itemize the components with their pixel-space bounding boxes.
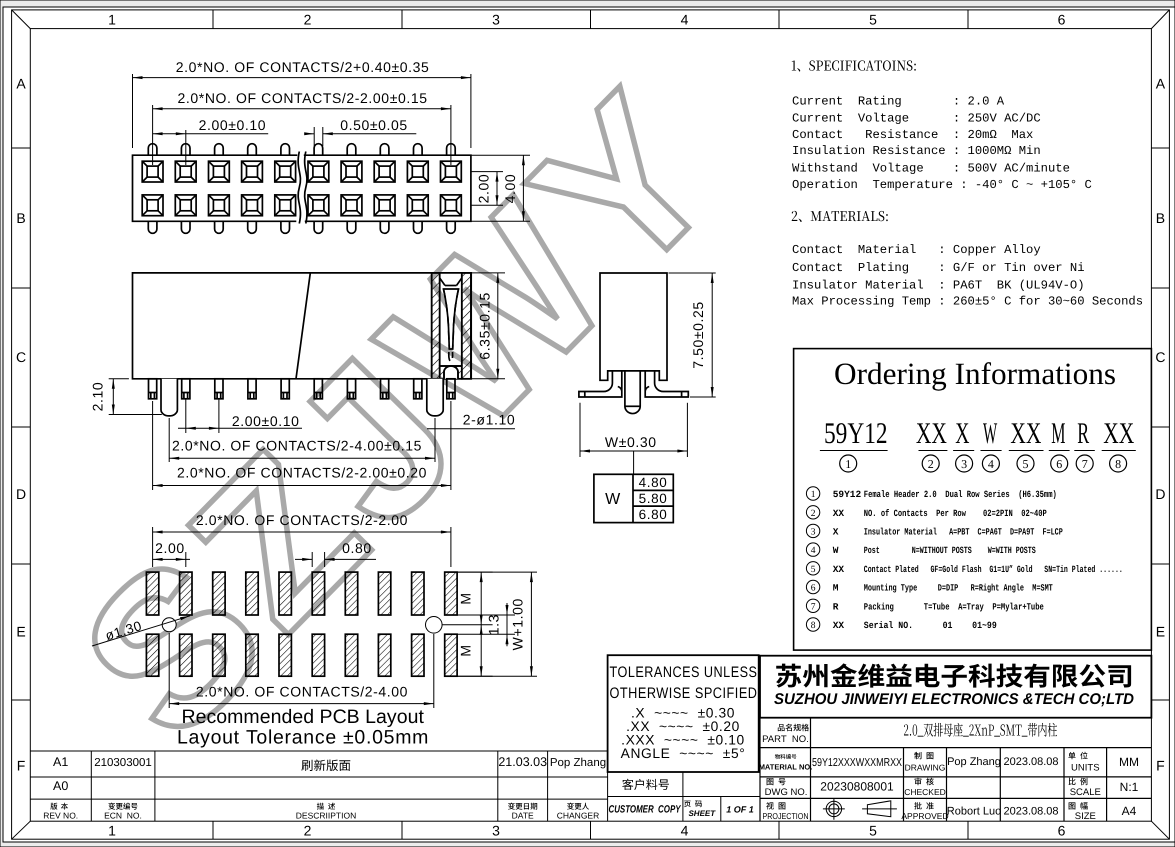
svg-text:5: 5: [869, 12, 877, 28]
svg-text:M: M: [1051, 417, 1065, 450]
svg-text:M: M: [458, 592, 474, 604]
svg-text:2.00: 2.00: [476, 174, 492, 204]
svg-text:7.50±0.25: 7.50±0.25: [690, 301, 706, 369]
svg-text:Current Voltage : 250V A: Current Voltage : 250V AC/DC: [792, 111, 1041, 125]
svg-text:1.3: 1.3: [486, 614, 502, 635]
svg-text:TOLERANCES UNLESS: TOLERANCES UNLESS: [610, 664, 758, 681]
svg-text:A0: A0: [53, 779, 68, 793]
svg-text:Packing T=Tube A=Tray: Packing T=Tube A=Tray P=Mylar+Tube: [864, 601, 1044, 612]
svg-text:59Y12XXXWXXMRXX: 59Y12XXXWXXMRXX: [812, 757, 902, 769]
svg-text:Insulation Resistance : 1000MΩ: Insulation Resistance : 1000MΩ Min: [792, 144, 1041, 158]
svg-text:21.03.03: 21.03.03: [498, 755, 547, 769]
svg-text:SUZHOU JINWEIYI ELECTRONICS &T: SUZHOU JINWEIYI ELECTRONICS &TECH CO;LTD: [774, 691, 1134, 708]
svg-text:Pop Zhang: Pop Zhang: [947, 756, 1001, 768]
svg-text:Post N=WITHOUT POSTS: Post N=WITHOUT POSTS W=WITH POSTS: [864, 545, 1036, 556]
svg-text:PART NO.: PART NO.: [762, 734, 809, 745]
svg-text:CHECKED: CHECKED: [904, 787, 946, 797]
svg-text:2.0*NO. OF CONTACTS/2+0.40±0.3: 2.0*NO. OF CONTACTS/2+0.40±0.35: [176, 59, 430, 75]
svg-text:2: 2: [928, 457, 934, 471]
svg-text:59Y12: 59Y12: [833, 489, 862, 500]
svg-text:M: M: [458, 644, 474, 656]
svg-text:2.0*NO. OF CONTACTS/2-4.00±0.1: 2.0*NO. OF CONTACTS/2-4.00±0.15: [172, 438, 422, 454]
svg-text:20230808001: 20230808001: [820, 780, 894, 794]
svg-text:W+1.00: W+1.00: [510, 598, 526, 650]
svg-text:2: 2: [304, 822, 312, 838]
svg-text:R: R: [833, 601, 839, 612]
svg-text:2.0*NO. OF CONTACTS/2-4.00: 2.0*NO. OF CONTACTS/2-4.00: [196, 684, 408, 700]
svg-text:Insulator Material : PA6T BK: Insulator Material : PA6T BK (UL94V-O): [792, 279, 1085, 293]
svg-text:Contact Plated GF=Gold Flash: Contact Plated GF=Gold Flash G1=1U” Gold…: [864, 564, 1123, 575]
svg-text:Robort Luo: Robort Luo: [947, 806, 1001, 818]
svg-text:XX: XX: [1010, 417, 1041, 450]
svg-text:2.0*NO. OF CONTACTS/2-2.00±0.1: 2.0*NO. OF CONTACTS/2-2.00±0.15: [178, 90, 428, 106]
svg-text:4.00: 4.00: [502, 174, 518, 204]
svg-text:2.0*NO. OF CONTACTS/2-2.00±0.2: 2.0*NO. OF CONTACTS/2-2.00±0.20: [177, 465, 427, 481]
svg-text:4: 4: [811, 546, 816, 556]
svg-text:ANGLE ~~~~ ±5°: ANGLE ~~~~ ±5°: [621, 746, 746, 761]
svg-text:1 OF 1: 1 OF 1: [726, 805, 754, 815]
svg-text:2.00±0.10: 2.00±0.10: [199, 117, 267, 133]
svg-text:D: D: [16, 486, 26, 502]
svg-text:R: R: [1077, 417, 1089, 450]
svg-text:5: 5: [811, 565, 816, 575]
svg-text:E: E: [16, 624, 25, 640]
svg-text:5: 5: [869, 822, 877, 838]
svg-text:5.80: 5.80: [639, 491, 668, 506]
svg-text:Mounting Type D=DIP R=Ri: Mounting Type D=DIP R=Right Angle M=SMT: [864, 583, 1053, 594]
svg-text:8: 8: [1115, 457, 1121, 471]
svg-text:MATERIAL NO.: MATERIAL NO.: [759, 763, 813, 772]
svg-text:2.00: 2.00: [155, 540, 185, 556]
svg-text:DATE: DATE: [512, 811, 534, 821]
svg-text:ECN NO.: ECN NO.: [104, 811, 142, 821]
svg-text:C: C: [16, 349, 26, 365]
svg-text:SCALE: SCALE: [1070, 787, 1101, 798]
svg-text:Max Processing Temp : 260±5° C: Max Processing Temp : 260±5° C for 30~60…: [792, 294, 1143, 308]
svg-text:A: A: [1156, 75, 1166, 91]
svg-text:XX: XX: [833, 508, 845, 519]
svg-text:OTHERWISE SPCIFIED: OTHERWISE SPCIFIED: [610, 685, 758, 702]
svg-text:Operation Temperature : -40°: Operation Temperature : -40° C ~ +105° C: [792, 178, 1092, 192]
svg-text:DRAWING: DRAWING: [905, 763, 946, 773]
svg-text:A4: A4: [1122, 804, 1137, 818]
svg-text:W: W: [833, 545, 839, 556]
svg-text:1: 1: [811, 490, 816, 500]
svg-text:7: 7: [1082, 457, 1088, 471]
svg-text:6.35±0.15: 6.35±0.15: [476, 292, 492, 360]
svg-text:Serial NO. 01 01~99: Serial NO. 01 01~99: [864, 620, 997, 631]
svg-text:XX: XX: [833, 620, 845, 631]
svg-text:XX: XX: [916, 417, 947, 450]
svg-text:SIZE: SIZE: [1075, 811, 1096, 822]
svg-text:0.50±0.05: 0.50±0.05: [340, 117, 408, 133]
svg-text:6: 6: [811, 584, 816, 594]
svg-text:4: 4: [681, 12, 689, 28]
svg-text:3: 3: [811, 527, 816, 537]
svg-text:DWG NO.: DWG NO.: [765, 787, 808, 798]
svg-text:XX: XX: [1103, 417, 1134, 450]
svg-text:1: 1: [845, 457, 851, 471]
svg-text:B: B: [1156, 210, 1165, 226]
svg-text:E: E: [1156, 624, 1165, 640]
svg-text:7: 7: [811, 602, 816, 612]
svg-text:D: D: [1155, 486, 1165, 502]
svg-text:Recommended PCB Layout: Recommended PCB Layout: [182, 706, 425, 728]
svg-text:Withstand Voltage : 500V A: Withstand Voltage : 500V AC/minute: [792, 162, 1070, 176]
svg-text:A: A: [16, 75, 26, 91]
svg-text:Ordering Informations: Ordering Informations: [834, 356, 1116, 391]
svg-text:Current Rating : 2.0 A: Current Rating : 2.0 A: [792, 94, 1005, 108]
svg-text:6: 6: [1056, 457, 1062, 471]
svg-text:Female Header 2.0 Dual Row Se: Female Header 2.0 Dual Row Series (H6.35…: [864, 489, 1057, 500]
svg-text:W: W: [605, 491, 621, 508]
svg-text:F: F: [1156, 758, 1165, 774]
svg-text:6: 6: [1058, 822, 1066, 838]
svg-text:Layout Tolerance ±0.05mm: Layout Tolerance ±0.05mm: [177, 727, 429, 749]
svg-text:MM: MM: [1119, 755, 1139, 769]
svg-text:4: 4: [681, 822, 689, 838]
svg-text:DESCRIIPTION: DESCRIIPTION: [296, 811, 356, 821]
svg-text:W±0.30: W±0.30: [605, 434, 657, 450]
svg-text:2.0*NO. OF CONTACTS/2-2.00: 2.0*NO. OF CONTACTS/2-2.00: [196, 512, 408, 528]
svg-text:A1: A1: [53, 755, 68, 769]
svg-text:2.00±0.10: 2.00±0.10: [232, 413, 300, 429]
svg-text:1: 1: [108, 12, 116, 28]
svg-text:B: B: [16, 210, 25, 226]
svg-text:Insulator Material A=PBT C=: Insulator Material A=PBT C=PA6T D=PA9T F…: [864, 526, 1063, 537]
svg-text:Contact Resistance : 20mΩ: Contact Resistance : 20mΩ Max: [792, 128, 1033, 142]
svg-text:Pop Zhang: Pop Zhang: [550, 757, 606, 769]
svg-text:M: M: [833, 583, 839, 594]
svg-text:Contact Material : Copper A: Contact Material : Copper Alloy: [792, 243, 1041, 257]
svg-text:3: 3: [492, 822, 500, 838]
svg-text:Contact Plating : G/F or T: Contact Plating : G/F or Tin over Ni: [792, 261, 1085, 275]
svg-text:NO. of Contacts Per Row 02: NO. of Contacts Per Row 02=2PIN 02~40P: [864, 508, 1047, 519]
svg-text:CHANGER: CHANGER: [557, 811, 600, 821]
svg-text:2023.08.08: 2023.08.08: [1003, 756, 1058, 768]
svg-text:8: 8: [811, 621, 816, 631]
svg-text:CUSTOMER COPY: CUSTOMER COPY: [609, 804, 682, 816]
svg-text:2.10: 2.10: [90, 382, 106, 412]
svg-text:C: C: [1155, 349, 1165, 365]
svg-text:XX: XX: [833, 564, 845, 575]
svg-text:APPROVED: APPROVED: [901, 811, 948, 821]
svg-text:1: 1: [108, 822, 116, 838]
svg-text:4.80: 4.80: [639, 475, 668, 490]
svg-text:SHEET: SHEET: [688, 809, 716, 818]
svg-text:PROJECTION: PROJECTION: [763, 811, 809, 821]
svg-text:3: 3: [492, 12, 500, 28]
svg-text:REV NO.: REV NO.: [43, 811, 78, 821]
svg-text:X: X: [955, 417, 969, 450]
svg-text:5: 5: [1023, 457, 1029, 471]
svg-text:2: 2: [811, 509, 816, 519]
svg-text:6: 6: [1058, 12, 1066, 28]
svg-text:2-ø1.10: 2-ø1.10: [463, 412, 515, 428]
svg-text:59Y12: 59Y12: [824, 417, 888, 450]
svg-text:W: W: [983, 417, 998, 450]
svg-text:F: F: [17, 758, 26, 774]
svg-text:210303001: 210303001: [94, 757, 152, 769]
svg-text:2023.08.08: 2023.08.08: [1003, 806, 1058, 818]
svg-text:UNITS: UNITS: [1071, 763, 1100, 774]
svg-text:X: X: [833, 526, 839, 537]
svg-text:3: 3: [961, 457, 967, 471]
svg-text:4: 4: [988, 457, 994, 471]
svg-text:6.80: 6.80: [639, 507, 668, 522]
svg-text:0.80: 0.80: [342, 540, 372, 556]
svg-text:N:1: N:1: [1120, 780, 1139, 794]
svg-text:2: 2: [304, 12, 312, 28]
